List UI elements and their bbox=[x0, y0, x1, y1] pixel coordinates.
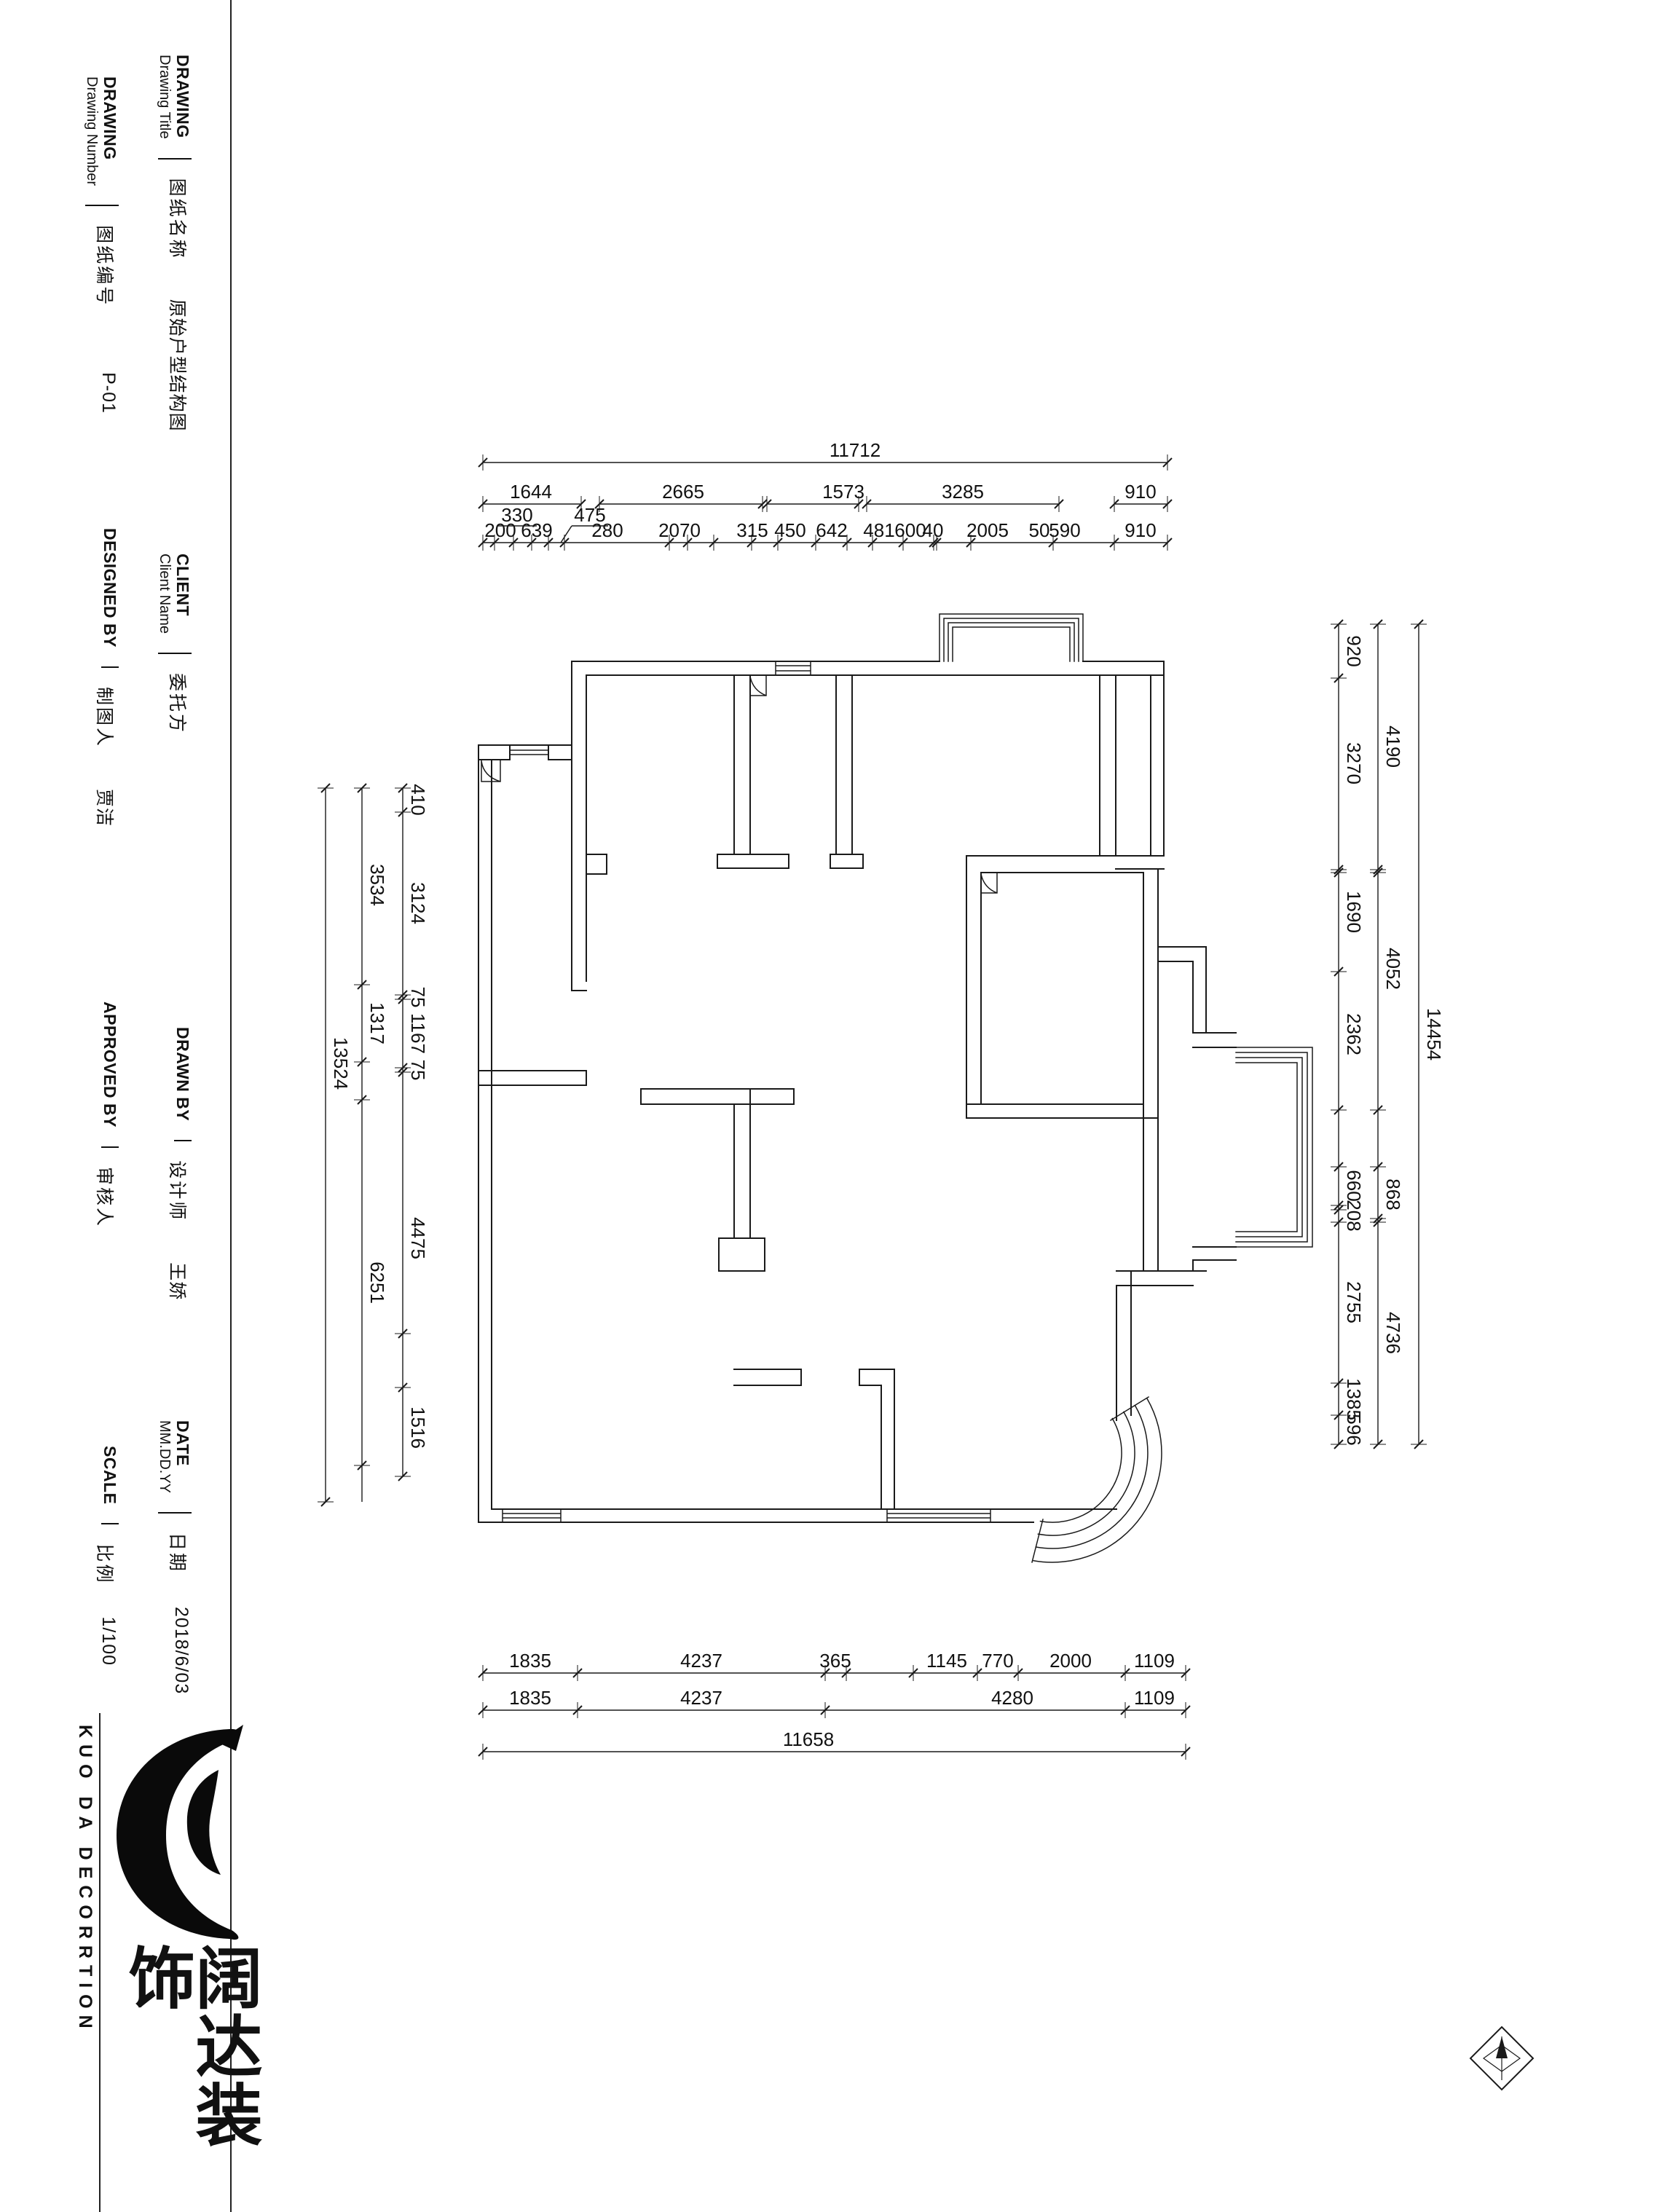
drawn-by-title: DRAWN BY bbox=[173, 1027, 192, 1121]
dim-label: 11658 bbox=[783, 1728, 834, 1750]
logo-chinese-text: 阔达装饰 bbox=[122, 1943, 256, 2212]
dim-label: 1835 bbox=[509, 1687, 551, 1709]
separator bbox=[85, 205, 119, 206]
drawing-number-label-cn: 图纸编号 bbox=[92, 225, 119, 307]
dim-label: 1644 bbox=[510, 481, 552, 503]
floorplan-canvas: 1171216442665157332859102006392802070315… bbox=[0, 0, 1678, 2212]
separator bbox=[174, 1140, 192, 1141]
dim-label: 2755 bbox=[1343, 1281, 1365, 1323]
dim-label: 208 bbox=[1343, 1200, 1365, 1231]
dim-label: 1109 bbox=[1134, 1687, 1175, 1709]
drawing-title-value: 原始户型结构图 bbox=[165, 299, 192, 432]
dim-label: 1835 bbox=[509, 1650, 551, 1672]
date-value: 2018/6/03 bbox=[170, 1607, 192, 1694]
scale-label-cn: 比例 bbox=[92, 1543, 119, 1584]
door-symbols bbox=[481, 675, 997, 893]
drawing-sheet: 1171216442665157332859102006392802070315… bbox=[0, 0, 1678, 2212]
dim-label: 2005 bbox=[966, 519, 1009, 541]
dim-label: 475 bbox=[574, 504, 605, 526]
drawing-number-title: DRAWING bbox=[100, 76, 119, 186]
north-compass-icon bbox=[1470, 2027, 1533, 2090]
designed-by-label-cn: 制图人 bbox=[92, 687, 119, 748]
scale-value: 1/100 bbox=[98, 1616, 119, 1666]
dim-label: 75 bbox=[407, 1060, 429, 1081]
dim-label: 1109 bbox=[1134, 1650, 1175, 1672]
dim-label: 1145 bbox=[926, 1650, 967, 1672]
dim-label: 2362 bbox=[1343, 1013, 1365, 1055]
dim-label: 14454 bbox=[1423, 1008, 1445, 1060]
client-subtitle: Client Name bbox=[157, 554, 173, 634]
date-label-cn: 日期 bbox=[165, 1532, 192, 1573]
drawing-number-value: P-01 bbox=[98, 372, 119, 414]
drawing-title-label-cn: 图纸名称 bbox=[165, 178, 192, 260]
dim-label: 642 bbox=[816, 519, 847, 541]
dim-label: 910 bbox=[1124, 519, 1156, 541]
date-subtitle: MM.DD.YY bbox=[157, 1420, 173, 1493]
dim-label: 40 bbox=[923, 519, 944, 541]
dim-label: 3285 bbox=[942, 481, 984, 503]
separator bbox=[101, 1523, 119, 1524]
date-title: DATE bbox=[173, 1420, 192, 1493]
drawing-title-subtitle: Drawing Title bbox=[157, 55, 173, 139]
separator bbox=[101, 666, 119, 668]
titleblock-date: DATE MM.DD.YY 日期 2018/6/03 bbox=[192, 1420, 465, 1455]
scale-title: SCALE bbox=[100, 1446, 119, 1504]
dim-label: 4237 bbox=[680, 1687, 722, 1709]
dim-label: 4052 bbox=[1382, 948, 1404, 990]
dim-label: 315 bbox=[736, 519, 768, 541]
separator bbox=[101, 1146, 119, 1148]
dim-label: 4237 bbox=[680, 1650, 722, 1672]
dim-label: 2665 bbox=[662, 481, 704, 503]
drawing-number-subtitle: Drawing Number bbox=[84, 76, 100, 186]
dim-label: 3270 bbox=[1343, 742, 1365, 784]
dim-label: 410 bbox=[407, 784, 429, 815]
approved-by-label-cn: 审核人 bbox=[92, 1167, 119, 1228]
designed-by-title: DESIGNED BY bbox=[100, 528, 119, 648]
dim-label: 920 bbox=[1343, 635, 1365, 666]
drawn-by-label-cn: 设计师 bbox=[165, 1160, 192, 1221]
dim-label: 3534 bbox=[366, 864, 388, 906]
separator bbox=[158, 1512, 192, 1514]
dim-label: 3124 bbox=[407, 882, 429, 924]
dim-label: 4475 bbox=[407, 1217, 429, 1259]
dim-label: 4280 bbox=[991, 1687, 1033, 1709]
designed-by-value: 贾洁 bbox=[92, 789, 119, 827]
logo-english-text: KUO DA DECORRTION bbox=[74, 1725, 95, 2035]
dim-label: 4190 bbox=[1382, 725, 1404, 768]
dim-label: 2000 bbox=[1049, 1650, 1092, 1672]
dim-label: 2070 bbox=[658, 519, 701, 541]
dim-label: 6251 bbox=[366, 1262, 388, 1304]
titleblock-designed-by: DESIGNED BY 制图人 贾洁 bbox=[119, 528, 417, 554]
dim-label: 596 bbox=[1343, 1414, 1365, 1445]
dim-label: 1573 bbox=[822, 481, 864, 503]
company-logo-emblem bbox=[117, 1725, 243, 1940]
dim-label: 660 bbox=[1343, 1170, 1365, 1201]
titleblock-approved-by: APPROVED BY 审核人 bbox=[119, 1001, 411, 1028]
dim-label: 450 bbox=[774, 519, 805, 541]
client-title: CLIENT bbox=[173, 554, 192, 634]
dim-label: 600 bbox=[894, 519, 926, 541]
dim-label: 4736 bbox=[1382, 1312, 1404, 1354]
dim-label: 481 bbox=[863, 519, 894, 541]
dim-label: 868 bbox=[1382, 1178, 1404, 1210]
dim-label: 365 bbox=[819, 1650, 851, 1672]
approved-by-title: APPROVED BY bbox=[100, 1001, 119, 1127]
dim-label: 590 bbox=[1049, 519, 1080, 541]
dim-label: 1690 bbox=[1343, 891, 1365, 933]
client-label-cn: 委托方 bbox=[165, 673, 192, 734]
dimension-annotations: 1171216442665157332859102006392802070315… bbox=[318, 439, 1445, 1760]
floorplan-walls bbox=[478, 614, 1312, 1562]
dim-label: 50 bbox=[1029, 519, 1050, 541]
titleblock-client: CLIENT Client Name 委托方 bbox=[192, 554, 438, 589]
dim-label: 11712 bbox=[830, 439, 881, 461]
separator bbox=[158, 158, 192, 160]
drawn-by-value: 王娇 bbox=[165, 1262, 192, 1300]
separator bbox=[158, 653, 192, 654]
drawing-title-title: DRAWING bbox=[173, 55, 192, 139]
dim-label: 770 bbox=[982, 1650, 1013, 1672]
titleblock-drawing-title: DRAWING Drawing Title 图纸名称 原始户型结构图 bbox=[192, 55, 569, 90]
dim-label: 910 bbox=[1124, 481, 1156, 503]
dim-label: 330 bbox=[501, 504, 532, 526]
titleblock-drawn-by: DRAWN BY 设计师 王娇 bbox=[192, 1027, 465, 1053]
